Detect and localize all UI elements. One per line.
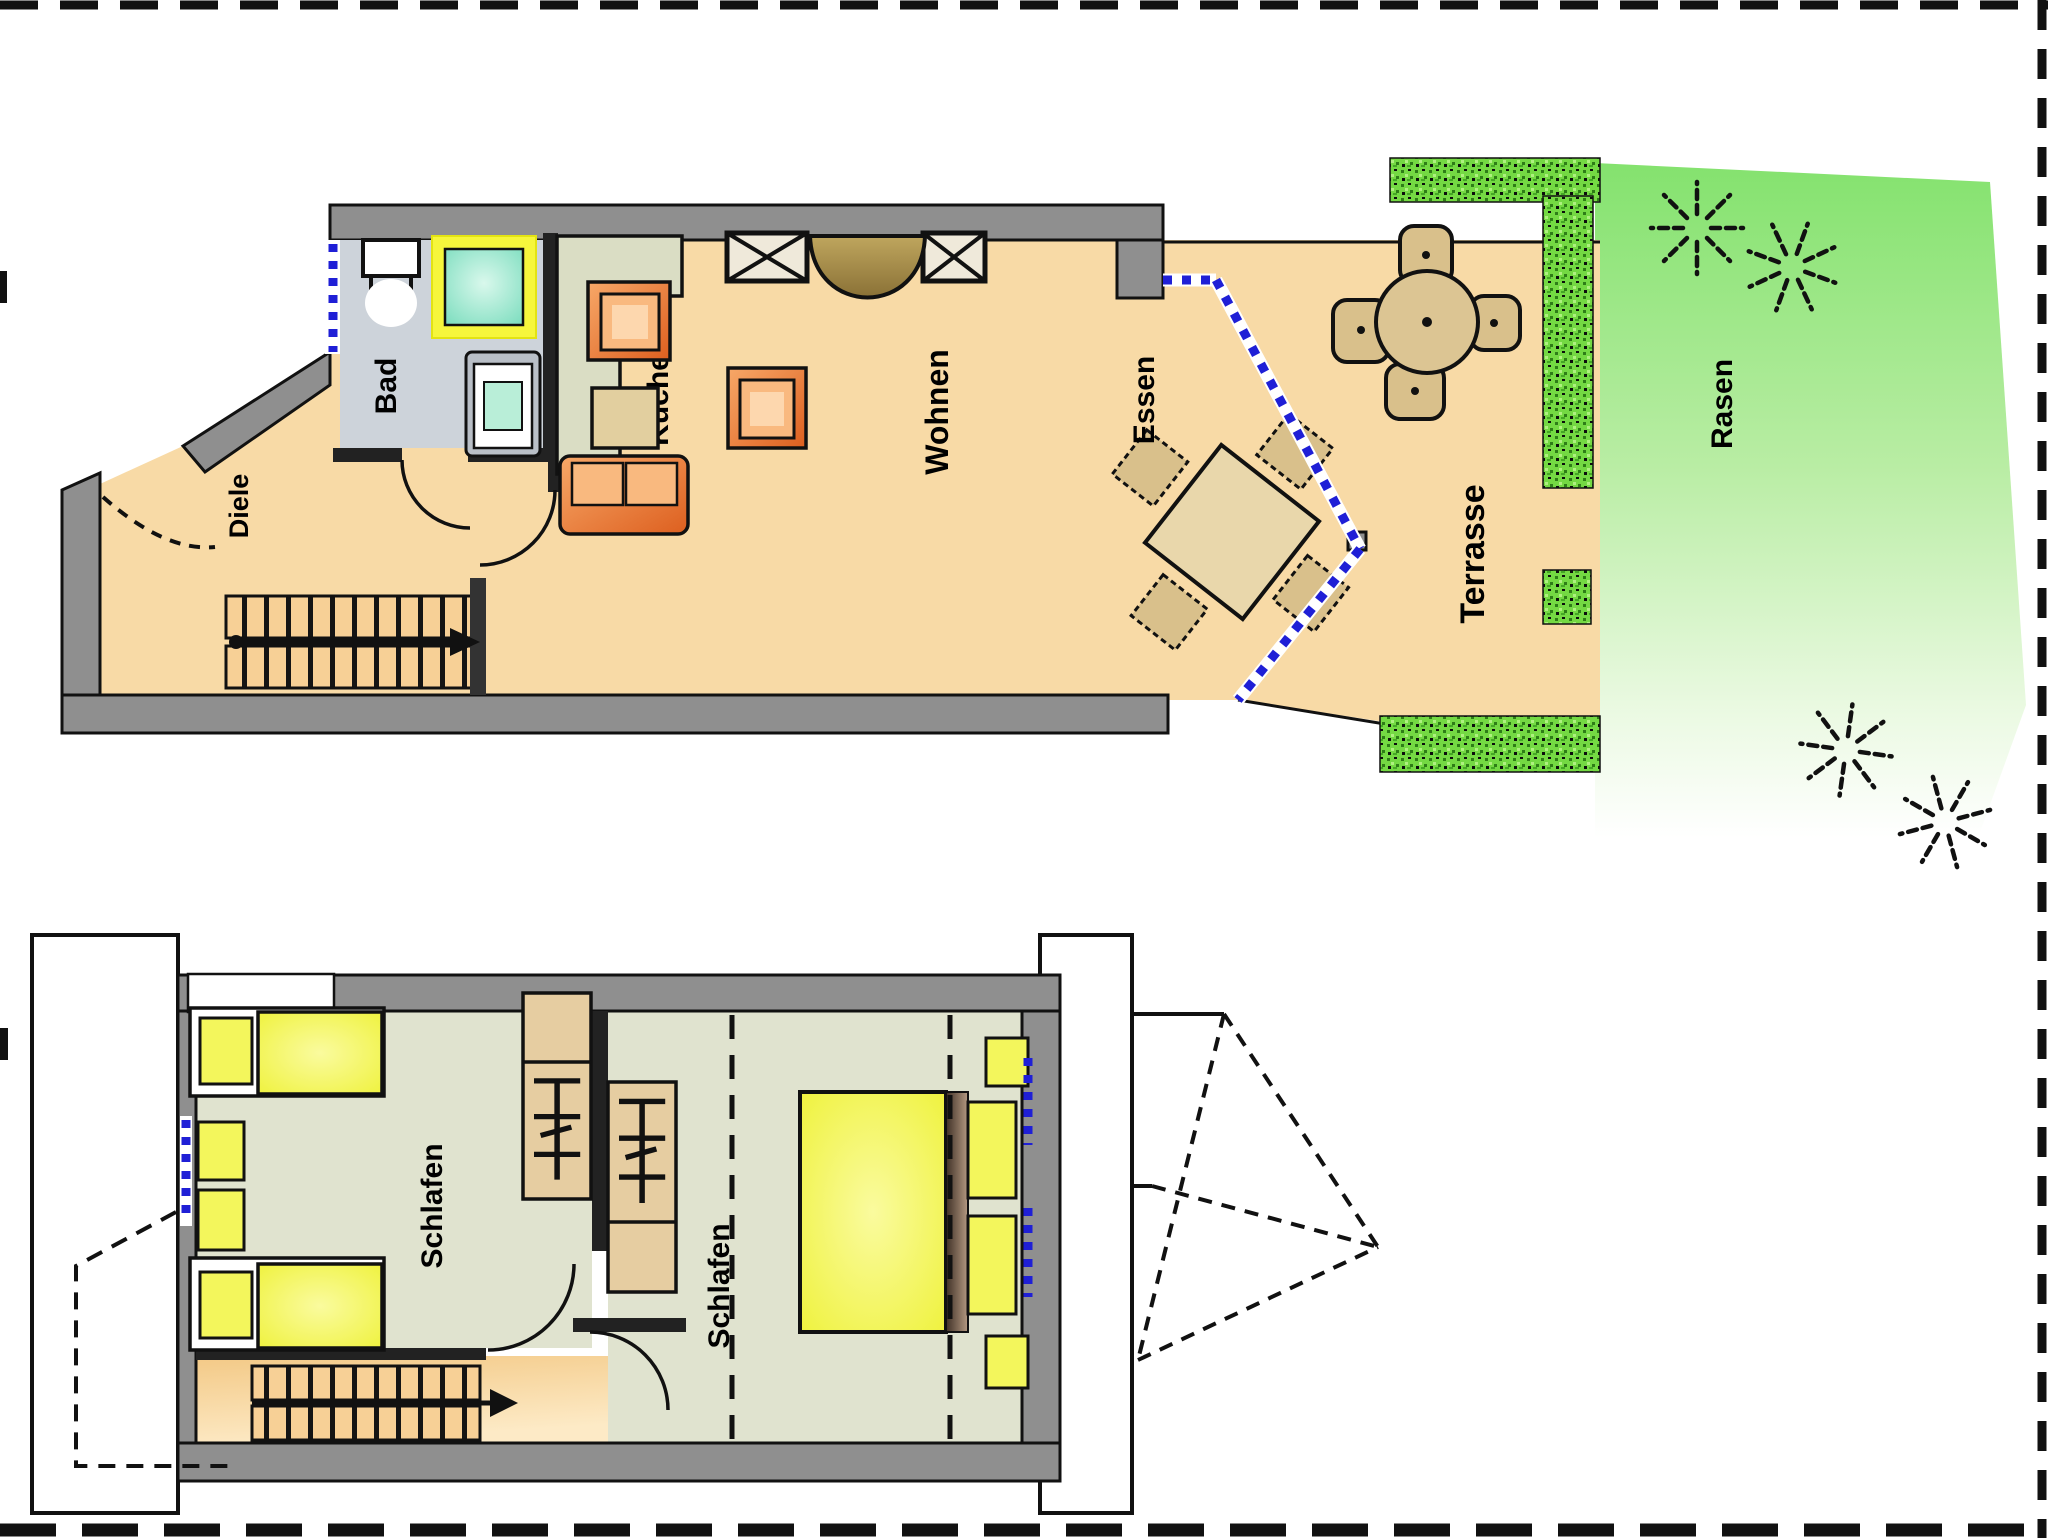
label-bad: Bad — [370, 358, 403, 415]
nightstand — [986, 1336, 1028, 1388]
upper-floor-plan: Bad Küche — [62, 205, 1410, 733]
wall-between-bedrooms — [592, 1011, 608, 1251]
label-diele: Diele — [224, 474, 254, 539]
landing-stub-wall — [573, 1318, 686, 1332]
pillow — [200, 1272, 252, 1338]
single-bed — [190, 1258, 384, 1350]
label-essen: Essen — [1128, 356, 1161, 444]
wardrobe — [608, 1082, 676, 1292]
left-building-outline — [32, 935, 178, 1513]
staircase-lower — [252, 1366, 518, 1440]
bath-wall-bottom-left — [333, 448, 402, 462]
pillow — [968, 1216, 1016, 1314]
hedge-right-upper — [1543, 196, 1593, 488]
garden-lawn: Rasen — [1595, 163, 2026, 885]
wardrobe — [523, 993, 591, 1199]
nightstand — [198, 1190, 244, 1250]
sink-icon — [466, 352, 540, 456]
pillow — [200, 1018, 252, 1084]
nightstand — [986, 1038, 1028, 1086]
hedge-right-lower — [1543, 570, 1591, 624]
pillow — [968, 1102, 1016, 1198]
shower-icon — [432, 236, 536, 338]
stair-steps — [226, 646, 472, 688]
coffee-table — [592, 388, 658, 448]
armchair — [728, 368, 806, 448]
hedge-bottom — [1380, 716, 1600, 772]
label-terrasse: Terrasse — [1454, 484, 1492, 623]
stair-steps — [252, 1366, 480, 1400]
blanket — [258, 1012, 382, 1094]
border-tick — [0, 1028, 8, 1060]
floor-plan-drawing: Rasen Terrasse — [0, 0, 2048, 1538]
single-bed — [190, 1008, 384, 1096]
label-schlafen-right: Schlafen — [703, 1223, 736, 1348]
wall-bottom — [62, 695, 1168, 733]
label-wohnen: Wohnen — [919, 349, 955, 475]
stair-steps — [226, 596, 472, 638]
blanket — [258, 1264, 382, 1348]
label-schlafen-left: Schlafen — [416, 1143, 449, 1268]
floor-plan-page: Rasen Terrasse — [0, 0, 2048, 1538]
toilet-icon — [363, 240, 419, 327]
wall-left — [62, 473, 100, 695]
armchair — [588, 282, 670, 360]
nightstand — [198, 1122, 244, 1180]
lawn-area — [1595, 163, 2026, 838]
wall-corner — [1117, 240, 1163, 298]
wall-bottom — [178, 1443, 1060, 1481]
sofa — [560, 456, 688, 534]
stair-steps — [252, 1406, 480, 1440]
stair-wall-stub — [470, 578, 486, 695]
label-rasen: Rasen — [1706, 359, 1739, 449]
border-tick — [0, 271, 7, 303]
staircase-upper — [226, 578, 486, 695]
